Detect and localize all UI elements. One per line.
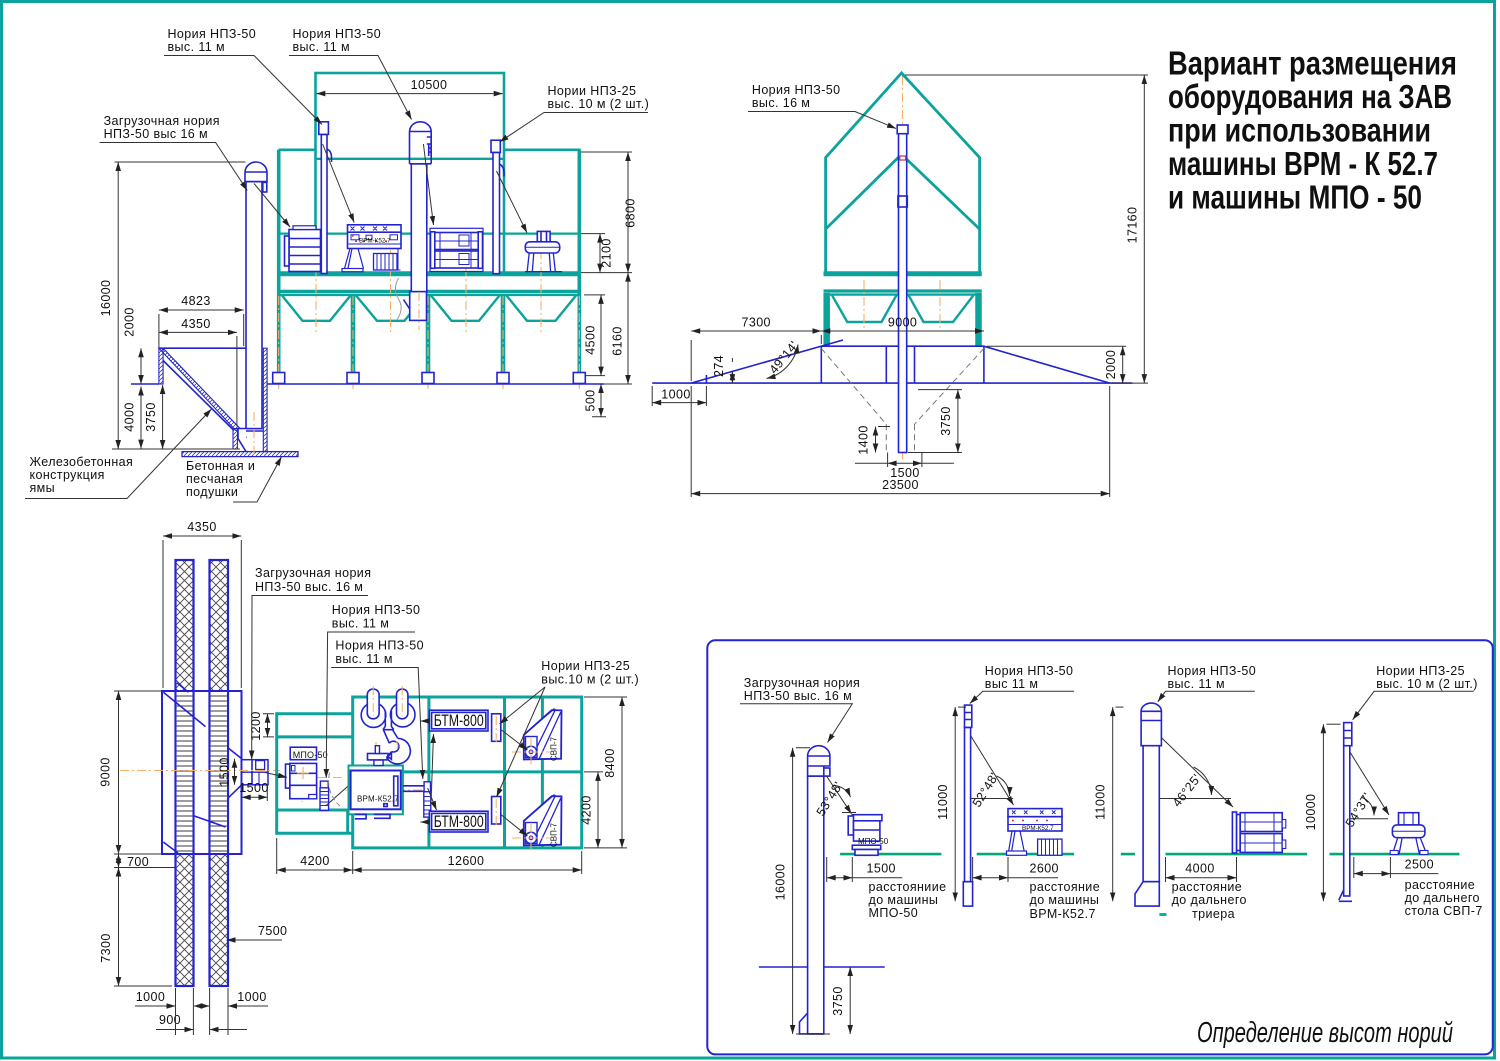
svg-text:МПО-50: МПО-50 <box>293 750 328 760</box>
svg-text:выс. 10 м (2 шт.): выс. 10 м (2 шт.) <box>548 97 650 111</box>
svg-text:1000: 1000 <box>237 990 266 1004</box>
svg-text:расстояниие: расстояниие <box>869 880 947 894</box>
svg-text:Вариант размещения: Вариант размещения <box>1168 46 1457 83</box>
svg-text:1500: 1500 <box>239 781 268 795</box>
svg-text:и машины МПО - 50: и машины МПО - 50 <box>1168 180 1422 217</box>
svg-text:Нории НПЗ-25: Нории НПЗ-25 <box>541 659 630 673</box>
svg-text:16000: 16000 <box>99 280 113 317</box>
svg-text:Нория НПЗ-50: Нория НПЗ-50 <box>985 664 1074 678</box>
svg-text:выс.10 м (2 шт.): выс.10 м (2 шт.) <box>541 673 639 687</box>
svg-text:при использовании: при использовании <box>1168 113 1431 150</box>
svg-text:ямы: ямы <box>30 481 56 495</box>
svg-text:1000: 1000 <box>136 990 165 1004</box>
svg-text:Определение высот норий: Определение высот норий <box>1197 1017 1453 1049</box>
svg-text:2100: 2100 <box>600 238 614 267</box>
svg-text:Нория НПЗ-50: Нория НПЗ-50 <box>332 603 421 617</box>
svg-text:БТМ-800: БТМ-800 <box>434 711 484 730</box>
svg-text:до машины: до машины <box>869 893 939 907</box>
svg-text:НПЗ-50 выс. 16 м: НПЗ-50 выс. 16 м <box>744 689 852 703</box>
svg-text:Нория НПЗ-50: Нория НПЗ-50 <box>335 639 424 653</box>
svg-text:выс. 11 м: выс. 11 м <box>168 40 225 54</box>
svg-text:11000: 11000 <box>1094 784 1108 820</box>
svg-text:9000: 9000 <box>888 316 917 330</box>
svg-text:Нории НПЗ-25: Нории НПЗ-25 <box>1376 664 1465 678</box>
svg-text:12600: 12600 <box>448 854 485 868</box>
svg-text:подушки: подушки <box>186 485 238 499</box>
svg-text:Железобетонная: Железобетонная <box>30 455 134 469</box>
svg-text:Нория НПЗ-50: Нория НПЗ-50 <box>168 27 257 41</box>
svg-text:МПО-50: МПО-50 <box>858 837 889 846</box>
svg-text:стола СВП-7: стола СВП-7 <box>1405 904 1483 918</box>
svg-text:выс. 11 м: выс. 11 м <box>293 40 350 54</box>
svg-text:3750: 3750 <box>939 406 953 435</box>
svg-text:триера: триера <box>1192 907 1235 921</box>
svg-text:7300: 7300 <box>741 316 770 330</box>
svg-text:1400: 1400 <box>857 425 871 454</box>
svg-text:900: 900 <box>159 1013 181 1027</box>
svg-text:4000: 4000 <box>123 402 137 431</box>
svg-text:4500: 4500 <box>584 325 598 354</box>
svg-text:песчаная: песчаная <box>186 472 243 486</box>
svg-text:выс. 11 м: выс. 11 м <box>332 617 389 631</box>
svg-text:500: 500 <box>584 389 598 411</box>
svg-text:4000: 4000 <box>1185 862 1214 876</box>
svg-text:8400: 8400 <box>603 748 617 777</box>
svg-text:БТМ-800: БТМ-800 <box>434 812 484 831</box>
svg-text:4200: 4200 <box>580 795 594 824</box>
svg-text:3750: 3750 <box>144 402 158 431</box>
svg-text:4200: 4200 <box>300 854 329 868</box>
svg-text:ВРМ-К52.7: ВРМ-К52.7 <box>1022 825 1054 832</box>
svg-text:7300: 7300 <box>99 933 113 962</box>
svg-text:до машины: до машины <box>1030 893 1100 907</box>
svg-text:Загрузочная нория: Загрузочная нория <box>744 676 860 690</box>
svg-text:ВРМ-К52.7: ВРМ-К52.7 <box>1030 907 1096 921</box>
svg-text:4350: 4350 <box>187 520 216 534</box>
svg-text:выс. 11 м: выс. 11 м <box>1168 677 1225 691</box>
svg-text:10500: 10500 <box>411 78 448 92</box>
svg-text:4350: 4350 <box>181 317 210 331</box>
svg-text:оборудования на ЗАВ: оборудования на ЗАВ <box>1168 79 1452 116</box>
svg-text:11000: 11000 <box>936 784 950 820</box>
svg-text:10000: 10000 <box>1304 794 1318 831</box>
svg-text:Нория НПЗ-50: Нория НПЗ-50 <box>293 27 382 41</box>
svg-text:расстояние: расстояние <box>1405 878 1476 892</box>
svg-text:17160: 17160 <box>1126 207 1140 244</box>
svg-text:НПЗ-50 выс 16 м: НПЗ-50 выс 16 м <box>104 127 208 141</box>
svg-text:1500: 1500 <box>867 862 896 876</box>
svg-text:выс. 10 м (2 шт.): выс. 10 м (2 шт.) <box>1376 677 1478 691</box>
svg-text:3750: 3750 <box>831 986 845 1015</box>
svg-text:2500: 2500 <box>1405 858 1434 872</box>
svg-text:до дальнего: до дальнего <box>1172 893 1247 907</box>
svg-text:16000: 16000 <box>774 864 788 901</box>
svg-text:СВП-7: СВП-7 <box>550 736 559 761</box>
svg-text:7500: 7500 <box>258 924 287 938</box>
svg-text:23500: 23500 <box>882 478 919 492</box>
svg-text:700: 700 <box>127 855 149 869</box>
svg-text:9000: 9000 <box>99 757 113 786</box>
svg-text:Нория НПЗ-50: Нория НПЗ-50 <box>752 83 841 97</box>
svg-text:НПЗ-50 выс. 16 м: НПЗ-50 выс. 16 м <box>255 580 363 594</box>
svg-text:1500: 1500 <box>218 757 232 786</box>
svg-text:Загрузочная нория: Загрузочная нория <box>255 566 371 580</box>
svg-text:6800: 6800 <box>624 198 638 227</box>
svg-text:МПО-50: МПО-50 <box>869 906 919 920</box>
svg-text:СВП-7: СВП-7 <box>550 822 559 847</box>
svg-text:4823: 4823 <box>181 294 210 308</box>
svg-text:6160: 6160 <box>611 326 625 355</box>
svg-text:2600: 2600 <box>1030 862 1059 876</box>
svg-text:расстояние: расстояние <box>1172 880 1243 894</box>
svg-text:1000: 1000 <box>661 388 690 402</box>
svg-text:выс 11 м: выс 11 м <box>985 677 1039 691</box>
svg-text:расстояние: расстояние <box>1030 880 1101 894</box>
svg-text:машины ВРМ - К 52.7: машины ВРМ - К 52.7 <box>1168 146 1438 183</box>
svg-text:1200: 1200 <box>249 711 263 740</box>
svg-text:Нории НПЗ-25: Нории НПЗ-25 <box>548 84 637 98</box>
svg-text:выс. 11 м: выс. 11 м <box>335 652 392 666</box>
svg-text:2000: 2000 <box>123 307 137 336</box>
svg-text:2000: 2000 <box>1104 350 1118 379</box>
svg-text:Бетонная и: Бетонная и <box>186 459 255 473</box>
svg-text:конструкция: конструкция <box>30 468 105 482</box>
svg-text:274: 274 <box>712 355 726 377</box>
svg-text:ВРМ-К52.7: ВРМ-К52.7 <box>357 795 399 804</box>
svg-text:Нория НПЗ-50: Нория НПЗ-50 <box>1168 664 1257 678</box>
svg-text:ВРМ-К52.7: ВРМ-К52.7 <box>359 238 391 245</box>
svg-text:выс. 16 м: выс. 16 м <box>752 96 810 110</box>
svg-text:до дальнего: до дальнего <box>1405 891 1480 905</box>
svg-text:Загрузочная нория: Загрузочная нория <box>104 114 220 128</box>
